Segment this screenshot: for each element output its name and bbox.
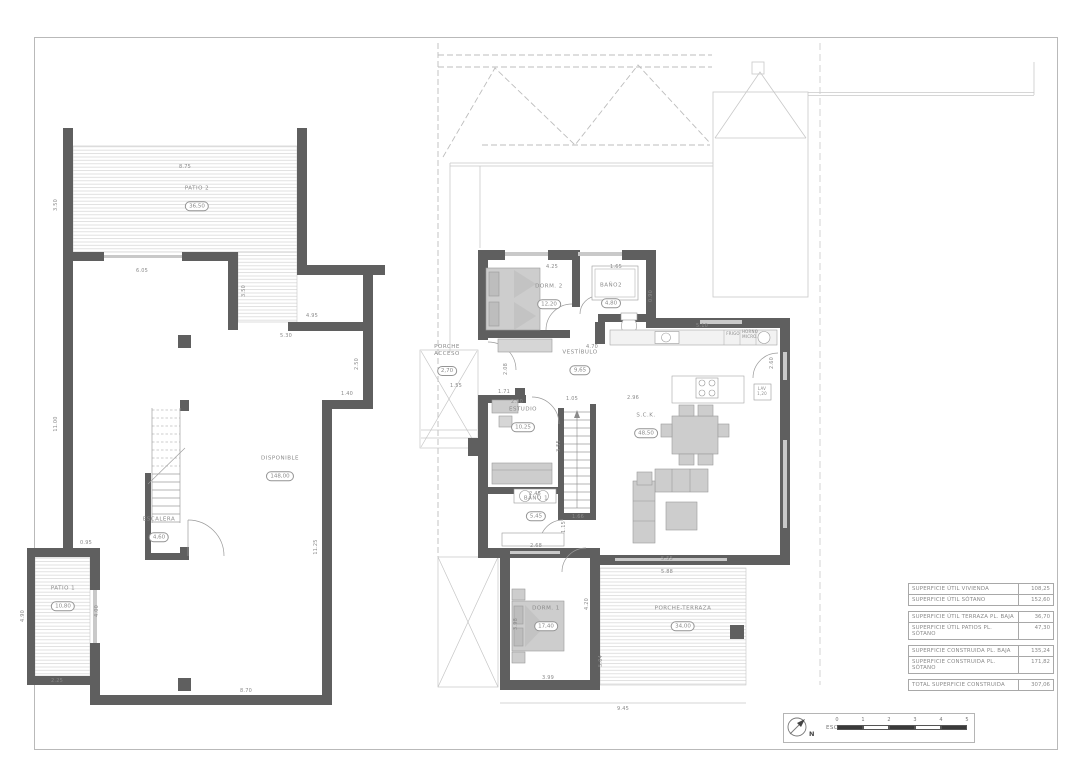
room-label: PATIO 236,50 xyxy=(185,185,209,211)
area-table-row: SUPERFICIE CONSTRUIDA PL. BAJA135,24 xyxy=(908,645,1054,657)
dimension-label: 2.50 xyxy=(354,358,360,370)
surface-area-table: SUPERFICIE ÚTIL VIVIENDA108,25SUPERFICIE… xyxy=(908,584,1054,697)
dimension-label: 1.66 xyxy=(572,514,584,520)
room-area-badge: 5,45 xyxy=(526,511,546,521)
scale-tick-label: 2 xyxy=(887,717,890,723)
room-label: DORM. 117,40 xyxy=(532,605,560,631)
room-label: DISPONIBLE148,00 xyxy=(261,455,299,481)
room-name: DORM. 2 xyxy=(535,283,563,290)
area-table-row: TOTAL SUPERFICIE CONSTRUIDA307,06 xyxy=(908,679,1054,691)
dimension-label: 4.00 xyxy=(94,605,100,617)
area-table-value: 307,06 xyxy=(1018,680,1053,690)
area-table-label: SUPERFICIE ÚTIL VIVIENDA xyxy=(909,584,1018,594)
area-table-group: TOTAL SUPERFICIE CONSTRUIDA307,06 xyxy=(908,679,1054,691)
dimension-label: 2.90 xyxy=(511,399,523,405)
dimension-label: 5.10 xyxy=(696,323,708,329)
room-area-badge: 12,20 xyxy=(537,299,561,309)
room-name: ESCALERA xyxy=(143,516,175,523)
area-table-value: 36,70 xyxy=(1018,612,1053,622)
area-table-row: SUPERFICIE ÚTIL PATIOS PL. SÓTANO47,30 xyxy=(908,622,1054,640)
dimension-label: 3.50 xyxy=(241,285,247,297)
area-table-label: SUPERFICIE ÚTIL SÓTANO xyxy=(909,595,1018,605)
scale-tick-label: 0 xyxy=(835,717,838,723)
dimension-label: 1.65 xyxy=(610,264,622,270)
dimension-label: 5.55 xyxy=(661,556,673,562)
dimension-label: 1.55 xyxy=(450,383,462,389)
room-area-badge: 10,25 xyxy=(511,422,535,432)
area-table-label: SUPERFICIE CONSTRUIDA PL. SÓTANO xyxy=(909,657,1018,673)
area-table-label: TOTAL SUPERFICIE CONSTRUIDA xyxy=(909,680,1018,690)
area-table-group: SUPERFICIE ÚTIL TERRAZA PL. BAJA36,70SUP… xyxy=(908,611,1054,640)
room-label: BAÑO24,80 xyxy=(600,282,622,308)
drawing-sheet: 8.753.506.053.504.955.302.501.4011.0011.… xyxy=(0,0,1080,765)
dimension-label: 1.05 xyxy=(566,396,578,402)
dimension-label: 8.70 xyxy=(240,688,252,694)
dimension-label: 1,20 xyxy=(757,392,767,396)
dimension-label: MICRO. xyxy=(742,335,758,339)
dimension-label: FRIGO xyxy=(726,332,740,336)
room-name: DISPONIBLE xyxy=(261,455,299,462)
dimension-label: 5.88 xyxy=(661,569,673,575)
room-name: PORCHE-TERRAZA xyxy=(655,605,712,612)
area-table-row: SUPERFICIE ÚTIL VIVIENDA108,25 xyxy=(908,583,1054,595)
room-label: PORCHE-TERRAZA34,00 xyxy=(655,605,712,631)
area-table-value: 135,24 xyxy=(1018,646,1053,656)
dimension-label: 2.25 xyxy=(51,678,63,684)
dimension-label: 3.50 xyxy=(53,199,59,211)
dimension-label: 5.04 xyxy=(598,655,604,667)
dimension-label: 2.08 xyxy=(503,363,509,375)
scale-tick-label: 4 xyxy=(939,717,942,723)
area-table-group: SUPERFICIE CONSTRUIDA PL. BAJA135,24SUPE… xyxy=(908,645,1054,674)
room-name: PATIO 1 xyxy=(51,585,75,592)
room-name: DORM. 1 xyxy=(532,605,560,612)
room-name: BAÑO2 xyxy=(600,282,622,289)
room-label: ESCALERA4,60 xyxy=(143,516,175,542)
dimension-label: 6.05 xyxy=(136,268,148,274)
room-name: BAÑO 1 xyxy=(524,495,548,502)
dimension-label: 0.90 xyxy=(648,290,654,302)
room-area-badge: 4,80 xyxy=(601,298,621,308)
room-label: PORCHE ACCESO2,70 xyxy=(434,344,460,376)
dimension-label: 3.55 xyxy=(556,440,562,452)
area-table-value: 152,60 xyxy=(1018,595,1053,605)
dimension-label: 3.99 xyxy=(542,675,554,681)
room-name: S.C.K. xyxy=(634,412,658,419)
room-label: S.C.K.48,50 xyxy=(634,412,658,438)
room-label: ESTUDIO10,25 xyxy=(509,406,537,432)
dimension-label: 2.60 xyxy=(769,357,775,369)
scale-segment xyxy=(941,725,967,730)
area-table-value: 108,25 xyxy=(1018,584,1053,594)
area-table-row: SUPERFICIE ÚTIL SÓTANO152,60 xyxy=(908,594,1054,606)
dimension-label: 1.71 xyxy=(498,389,510,395)
room-area-badge: 9,65 xyxy=(570,365,590,375)
dimension-label: 9.45 xyxy=(617,706,629,712)
scale-segment xyxy=(863,725,889,730)
scale-tick-label: 3 xyxy=(913,717,916,723)
dimension-label: 3.98 xyxy=(513,618,519,630)
room-area-badge: 10,80 xyxy=(51,601,75,611)
dimension-label: 11.25 xyxy=(313,539,319,554)
room-name: PATIO 2 xyxy=(185,185,209,192)
scale-tick-label: 5 xyxy=(965,717,968,723)
dimension-label: 2.68 xyxy=(530,543,542,549)
area-table-value: 47,30 xyxy=(1018,623,1053,639)
area-table-row: SUPERFICIE ÚTIL TERRAZA PL. BAJA36,70 xyxy=(908,611,1054,623)
dimension-label: 4.95 xyxy=(306,313,318,319)
scale-bar: N ESCALA : 012345 xyxy=(783,713,975,743)
room-label: DORM. 212,20 xyxy=(535,283,563,309)
scale-segment xyxy=(837,725,863,730)
dimension-label: 4.20 xyxy=(584,598,590,610)
dimension-label: 4.25 xyxy=(546,264,558,270)
room-label: VESTÍBULO9,65 xyxy=(562,349,597,375)
room-name: ESTUDIO xyxy=(509,406,537,413)
scale-segment xyxy=(889,725,915,730)
room-area-badge: 34,00 xyxy=(671,621,695,631)
room-label: PATIO 110,80 xyxy=(51,585,75,611)
area-table-label: SUPERFICIE ÚTIL TERRAZA PL. BAJA xyxy=(909,612,1018,622)
area-table-value: 171,82 xyxy=(1018,657,1053,673)
area-table-group: SUPERFICIE ÚTIL VIVIENDA108,25SUPERFICIE… xyxy=(908,583,1054,606)
area-table-row: SUPERFICIE CONSTRUIDA PL. SÓTANO171,82 xyxy=(908,656,1054,674)
scale-segment xyxy=(915,725,941,730)
north-label: N xyxy=(809,730,814,738)
dimension-label: 4.90 xyxy=(20,610,26,622)
dimension-label: 1.15 xyxy=(561,521,567,533)
room-area-badge: 148,00 xyxy=(266,471,293,481)
room-area-badge: 17,40 xyxy=(534,621,558,631)
room-name: PORCHE ACCESO xyxy=(434,344,460,357)
dimension-label: 1.40 xyxy=(341,391,353,397)
room-area-badge: 48,50 xyxy=(634,428,658,438)
dimension-label: 8.75 xyxy=(179,164,191,170)
dimension-label: 2.96 xyxy=(627,395,639,401)
dimension-label: 5.30 xyxy=(280,333,292,339)
dimension-label: 11.00 xyxy=(53,416,59,431)
room-area-badge: 36,50 xyxy=(185,201,209,211)
area-table-label: SUPERFICIE CONSTRUIDA PL. BAJA xyxy=(909,646,1018,656)
area-table-label: SUPERFICIE ÚTIL PATIOS PL. SÓTANO xyxy=(909,623,1018,639)
room-label: BAÑO 15,45 xyxy=(524,495,548,521)
room-area-badge: 2,70 xyxy=(437,366,457,376)
scale-tick-label: 1 xyxy=(861,717,864,723)
room-area-badge: 4,60 xyxy=(149,532,169,542)
room-name: VESTÍBULO xyxy=(562,349,597,356)
dimension-label: 0.95 xyxy=(80,540,92,546)
